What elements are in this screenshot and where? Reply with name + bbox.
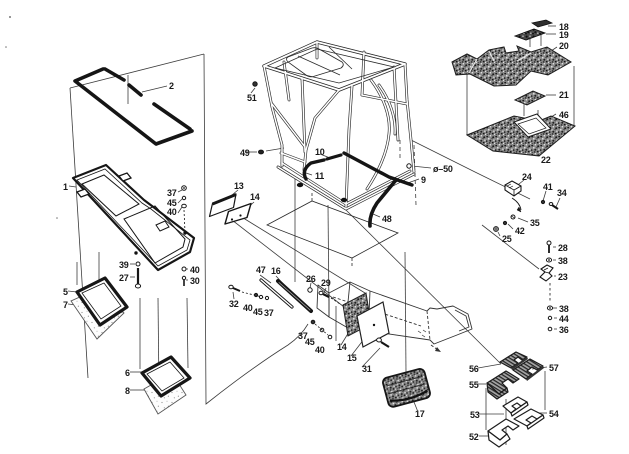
- svg-text:20: 20: [559, 41, 569, 51]
- svg-text:5: 5: [63, 287, 68, 297]
- svg-text:45: 45: [305, 337, 315, 347]
- svg-text:25: 25: [502, 234, 512, 244]
- svg-text:56: 56: [469, 364, 479, 374]
- svg-text:57: 57: [549, 363, 559, 373]
- svg-text:1: 1: [63, 182, 68, 192]
- svg-text:51: 51: [247, 93, 257, 103]
- svg-text:34: 34: [557, 188, 567, 198]
- svg-text:55: 55: [469, 380, 479, 390]
- svg-text:23: 23: [558, 272, 568, 282]
- svg-text:13: 13: [234, 181, 244, 191]
- svg-text:7: 7: [63, 300, 68, 310]
- svg-text:2: 2: [169, 81, 174, 91]
- svg-text:8: 8: [125, 386, 130, 396]
- svg-text:54: 54: [549, 409, 559, 419]
- svg-text:35: 35: [530, 218, 540, 228]
- svg-text:29: 29: [321, 278, 331, 288]
- svg-text:32: 32: [229, 299, 239, 309]
- svg-text:41: 41: [543, 182, 553, 192]
- svg-text:42: 42: [515, 226, 525, 236]
- svg-text:21: 21: [559, 90, 569, 100]
- svg-text:40: 40: [167, 207, 177, 217]
- svg-text:46: 46: [559, 110, 569, 120]
- svg-text:11: 11: [315, 171, 324, 181]
- svg-text:36: 36: [559, 325, 569, 335]
- svg-text:53: 53: [470, 410, 480, 420]
- svg-text:44: 44: [559, 314, 569, 324]
- svg-text:49: 49: [240, 148, 250, 158]
- svg-text:22: 22: [541, 155, 551, 165]
- svg-text:37: 37: [167, 188, 177, 198]
- svg-text:16: 16: [271, 266, 281, 276]
- svg-text:27: 27: [119, 273, 129, 283]
- svg-text:48: 48: [382, 214, 392, 224]
- svg-text:30: 30: [190, 276, 200, 286]
- svg-text:14: 14: [250, 192, 260, 202]
- svg-text:38: 38: [559, 304, 569, 314]
- svg-text:40: 40: [243, 303, 253, 313]
- svg-text:52: 52: [469, 432, 479, 442]
- svg-text:17: 17: [415, 409, 425, 419]
- svg-text:26: 26: [306, 274, 316, 284]
- svg-text:6: 6: [125, 368, 130, 378]
- svg-text:40: 40: [315, 345, 325, 355]
- svg-text:38: 38: [558, 256, 568, 266]
- svg-text:37: 37: [264, 308, 274, 318]
- svg-text:19: 19: [559, 30, 569, 40]
- svg-text:28: 28: [558, 243, 568, 253]
- svg-text:ø–50: ø–50: [433, 164, 453, 174]
- svg-text:45: 45: [253, 307, 263, 317]
- svg-text:47: 47: [256, 265, 266, 275]
- svg-text:39: 39: [119, 260, 129, 270]
- svg-text:9: 9: [421, 175, 426, 185]
- svg-text:40: 40: [190, 265, 200, 275]
